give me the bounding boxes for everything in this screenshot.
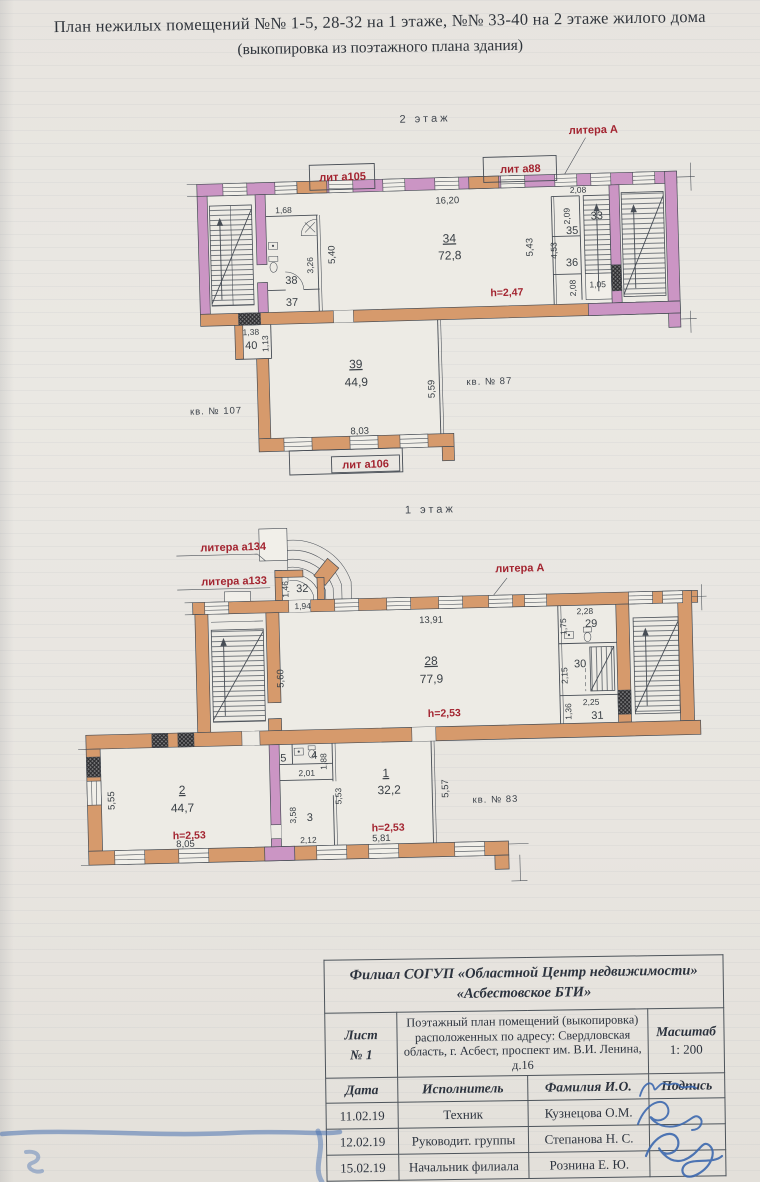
room-34-area: 72,8 bbox=[438, 248, 462, 263]
room-4-number: 4 bbox=[311, 750, 317, 762]
dim-5-43: 5,43 bbox=[524, 238, 536, 257]
row3-role: Начальник филиала bbox=[399, 1152, 529, 1180]
signature-stepanova bbox=[638, 1102, 702, 1130]
handwritten-signatures bbox=[630, 1072, 760, 1182]
dim-1-36: 1,36 bbox=[563, 703, 573, 720]
room-36-number: 36 bbox=[566, 257, 579, 269]
lit-a106-label: лит а106 bbox=[342, 458, 389, 471]
room-33-number: 33 bbox=[590, 210, 603, 222]
lit-a105-label: лит а105 bbox=[319, 171, 366, 184]
dim-8-03: 8,03 bbox=[350, 426, 369, 438]
room-5-number: 5 bbox=[280, 752, 286, 764]
room-30-number: 30 bbox=[574, 658, 587, 670]
dim-1-68: 1,68 bbox=[275, 205, 292, 215]
dim-2-28: 2,28 bbox=[576, 606, 593, 616]
h-2-47: h=2,47 bbox=[490, 286, 523, 299]
row1-role: Техник bbox=[398, 1100, 528, 1128]
dim-1-38: 1,38 bbox=[242, 327, 259, 337]
column-header-date: Дата bbox=[326, 1077, 398, 1103]
scanned-floor-plan-page: { "header": { "line1": "План нежилых пом… bbox=[0, 0, 760, 1182]
dim-5-40: 5,40 bbox=[326, 245, 338, 264]
plan-description: Поэтажный план помещений (выкопировка) р… bbox=[397, 1009, 649, 1077]
litera-a-f1: литера А bbox=[495, 562, 544, 575]
room-35-number: 35 bbox=[566, 225, 579, 237]
room-40-number: 40 bbox=[245, 340, 258, 352]
room-1-number: 1 bbox=[382, 766, 389, 780]
page-title: План нежилых помещений №№ 1-5, 28-32 на … bbox=[0, 6, 760, 63]
dim-13-91: 13,91 bbox=[419, 615, 443, 627]
room-32-number: 32 bbox=[296, 583, 309, 595]
scale-cell: Масштаб 1: 200 bbox=[648, 1008, 725, 1074]
dim-2-25: 2,25 bbox=[583, 697, 600, 707]
floor-plan-2: 2 этажлитера Алит а105лит а8816,203472,8… bbox=[145, 104, 715, 491]
dim-2-08b: 2,08 bbox=[568, 279, 578, 296]
dim-2-08a: 2,08 bbox=[570, 185, 587, 195]
dim-16-20: 16,20 bbox=[435, 195, 459, 207]
dim-1-13: 1,13 bbox=[260, 335, 270, 352]
row2-role: Руководит. группы bbox=[398, 1126, 528, 1154]
dim-5-59: 5,59 bbox=[426, 380, 438, 399]
page-title-line1: План нежилых помещений №№ 1-5, 28-32 на … bbox=[0, 6, 760, 38]
dim-4-53: 4,53 bbox=[548, 242, 558, 259]
dim-1-46: 1,46 bbox=[280, 581, 290, 598]
column-header-executor: Исполнитель bbox=[398, 1075, 528, 1102]
kv-83-label: кв. № 83 bbox=[472, 794, 518, 806]
room-28-number: 28 bbox=[424, 654, 438, 668]
room-39-area: 44,9 bbox=[344, 375, 368, 390]
floor2-label: 2 этаж bbox=[399, 112, 450, 125]
dim-2-01: 2,01 bbox=[298, 768, 315, 778]
room-34-number: 34 bbox=[442, 231, 456, 245]
floor-plan-1: 1 этажлитера а134литера а133литера А1,46… bbox=[50, 492, 720, 908]
dim-1-94: 1,94 bbox=[294, 601, 311, 611]
signature-roznina bbox=[646, 1134, 722, 1177]
floor1-label: 1 этаж bbox=[405, 503, 456, 516]
sheet-number: № 1 bbox=[329, 1045, 394, 1066]
dim-5-53: 5,53 bbox=[333, 788, 343, 805]
room-3-number: 3 bbox=[307, 812, 313, 824]
scale-label: Масштаб bbox=[651, 1023, 720, 1040]
litera-a133-label: литера а133 bbox=[201, 575, 267, 589]
dim-5-55: 5,55 bbox=[106, 791, 117, 810]
pen-mark-small bbox=[26, 1152, 42, 1172]
room-2-number: 2 bbox=[179, 783, 186, 797]
dim-5-81: 5,81 bbox=[372, 833, 391, 844]
page-title-line2: (выкопировка из поэтажного плана здания) bbox=[0, 33, 760, 63]
scale-value: 1: 200 bbox=[652, 1041, 721, 1058]
lit-a88-label: лит а88 bbox=[500, 163, 541, 176]
dim-2-15: 2,15 bbox=[559, 667, 569, 684]
litera-a134-label: литера а134 bbox=[200, 541, 267, 555]
blue-pen-marks bbox=[0, 1118, 360, 1182]
room-38-number: 38 bbox=[285, 275, 298, 287]
room-31-number: 31 bbox=[591, 710, 604, 722]
dim-2-09: 2,09 bbox=[562, 207, 572, 224]
kv-87-label: кв. № 87 bbox=[466, 376, 512, 388]
litera-a-f2: литера А bbox=[569, 124, 618, 137]
dim-1-75: 1,75 bbox=[558, 618, 568, 635]
dim-8-05: 8,05 bbox=[176, 839, 195, 850]
room-39-number: 39 bbox=[349, 357, 363, 371]
kv-107-label: кв. № 107 bbox=[190, 405, 242, 417]
dim-3-58: 3,58 bbox=[288, 807, 298, 824]
dim-5-57: 5,57 bbox=[440, 779, 451, 798]
room-28-area: 77,9 bbox=[420, 672, 444, 687]
dim-3-26: 3,26 bbox=[305, 257, 315, 274]
signature-kuznetsova bbox=[640, 1083, 696, 1096]
floor1-entrance-fan-stairs bbox=[176, 523, 508, 603]
dim-5-60: 5,60 bbox=[275, 669, 286, 688]
dim-1-05: 1,05 bbox=[589, 279, 606, 289]
room-29-number: 29 bbox=[585, 618, 598, 630]
organization-name: Филиал СОГУП «Областной Центр недвижимос… bbox=[324, 955, 724, 1014]
dim-1-88: 1,88 bbox=[318, 753, 328, 770]
room-1-area: 32,2 bbox=[377, 783, 401, 798]
room-2-area: 44,7 bbox=[171, 801, 195, 816]
dim-2-12: 2,12 bbox=[300, 835, 317, 845]
sheet-label: Лист bbox=[328, 1025, 393, 1046]
sheet-cell: Лист № 1 bbox=[325, 1012, 398, 1078]
room-37-number: 37 bbox=[286, 297, 299, 309]
pen-streak-horizontal bbox=[2, 1132, 340, 1134]
h-2-53-r28: h=2,53 bbox=[428, 707, 461, 720]
pen-streak-vertical bbox=[318, 1131, 322, 1182]
